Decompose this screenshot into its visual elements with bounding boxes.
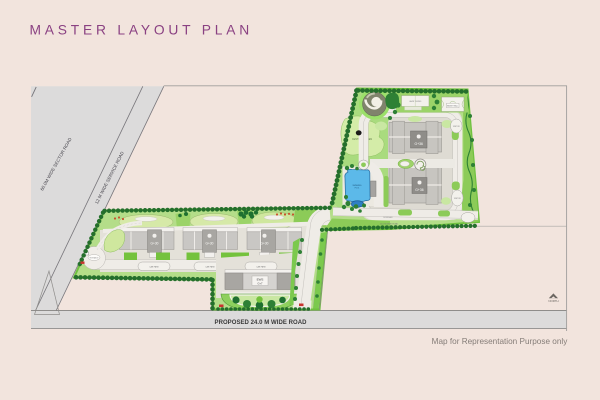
svg-text:BASKET BALL: BASKET BALL bbox=[447, 104, 458, 107]
svg-text:G+30: G+30 bbox=[261, 242, 269, 246]
svg-text:VISITOR: VISITOR bbox=[453, 126, 461, 128]
svg-text:EWS: EWS bbox=[257, 278, 264, 282]
svg-text:PROPOSED 24.0 M WIDE ROAD: PROPOSED 24.0 M WIDE ROAD bbox=[215, 320, 308, 326]
svg-text:G+30: G+30 bbox=[151, 242, 159, 246]
svg-text:CAR PARK: CAR PARK bbox=[256, 266, 266, 269]
svg-text:G+30: G+30 bbox=[206, 242, 214, 246]
svg-text:NORTH: NORTH bbox=[548, 299, 558, 303]
svg-text:LAWN TENNIS: LAWN TENNIS bbox=[409, 100, 422, 103]
svg-text:CAR PARK: CAR PARK bbox=[205, 266, 215, 269]
svg-text:Map for Representation Purpose: Map for Representation Purpose only bbox=[432, 337, 569, 346]
svg-text:POOL: POOL bbox=[355, 187, 360, 189]
svg-text:G+36: G+36 bbox=[415, 142, 424, 146]
svg-text:G+36: G+36 bbox=[415, 188, 424, 192]
svg-text:DRIVEWAY: DRIVEWAY bbox=[383, 216, 393, 219]
svg-text:12.0 M WIDE ROAD: 12.0 M WIDE ROAD bbox=[380, 223, 399, 226]
svg-text:VISITOR: VISITOR bbox=[454, 198, 462, 200]
svg-text:CAR PARK: CAR PARK bbox=[149, 266, 159, 269]
svg-text:G+7: G+7 bbox=[258, 281, 264, 285]
svg-text:MASTER LAYOUT PLAN: MASTER LAYOUT PLAN bbox=[30, 22, 254, 37]
